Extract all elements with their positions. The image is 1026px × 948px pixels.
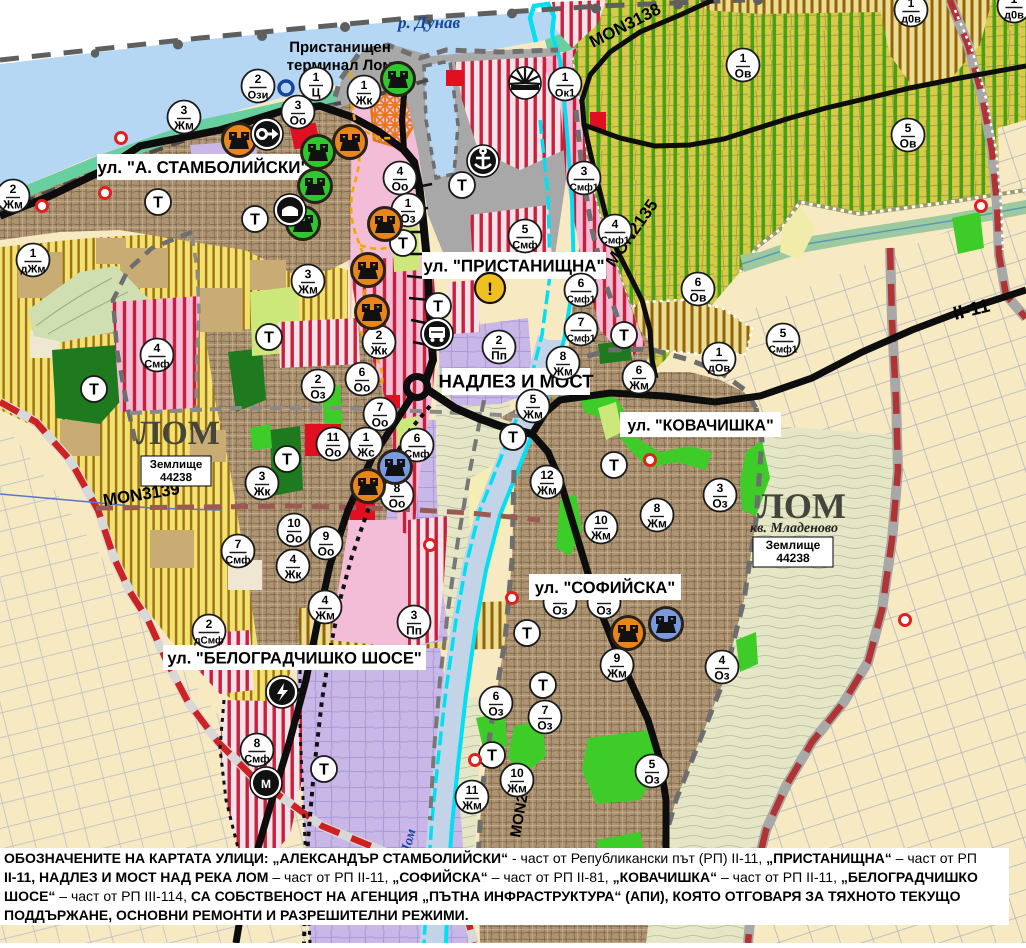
svg-text:1: 1 — [716, 345, 723, 359]
svg-text:9: 9 — [323, 529, 330, 543]
svg-text:3: 3 — [181, 103, 188, 117]
svg-text:Оз: Оз — [596, 604, 611, 618]
svg-text:7: 7 — [578, 315, 585, 329]
svg-text:Пп: Пп — [491, 349, 507, 363]
svg-text:Жм: Жм — [646, 517, 667, 531]
svg-text:Ок1: Ок1 — [555, 88, 575, 100]
svg-text:Смф: Смф — [512, 240, 538, 252]
svg-text:Жм: Жм — [506, 782, 527, 796]
svg-text:Ов: Ов — [900, 137, 917, 151]
svg-text:М: М — [261, 777, 271, 791]
svg-text:Смф: Смф — [225, 555, 251, 567]
svg-text:Жм: Жм — [590, 529, 611, 543]
svg-text:Оо: Оо — [290, 114, 307, 128]
svg-text:5: 5 — [530, 392, 537, 406]
svg-text:2: 2 — [496, 333, 503, 347]
svg-text:Т: Т — [89, 382, 99, 399]
svg-text:6: 6 — [359, 365, 366, 379]
svg-text:Оо: Оо — [354, 381, 371, 395]
svg-text:Пп: Пп — [406, 624, 422, 638]
svg-text:1: 1 — [908, 0, 915, 10]
svg-text:Оо: Оо — [372, 416, 389, 430]
svg-text:Т: Т — [487, 748, 497, 765]
svg-text:Оз: Оз — [552, 604, 567, 618]
svg-text:!: ! — [487, 279, 493, 299]
svg-text:ул. "БЕЛОГРАДЧИШКО ШОСЕ": ул. "БЕЛОГРАДЧИШКО ШОСЕ" — [167, 650, 421, 668]
svg-text:Ов: Ов — [690, 291, 707, 305]
svg-text:Жм: Жм — [628, 379, 649, 393]
svg-text:Жм: Жм — [536, 484, 557, 498]
svg-text:Т: Т — [619, 328, 629, 345]
svg-text:3: 3 — [295, 98, 302, 112]
svg-text:Смф: Смф — [144, 359, 170, 371]
svg-text:2: 2 — [376, 328, 383, 342]
svg-text:Жм: Жм — [552, 365, 573, 379]
svg-text:Т: Т — [538, 678, 548, 695]
svg-text:5: 5 — [522, 222, 529, 236]
svg-text:дОв: дОв — [708, 363, 731, 375]
svg-text:ЛОМ: ЛОМ — [757, 486, 846, 526]
svg-text:д0в: д0в — [901, 14, 921, 26]
svg-text:5: 5 — [780, 326, 787, 340]
svg-text:10: 10 — [510, 766, 524, 780]
svg-text:6: 6 — [636, 363, 643, 377]
svg-text:Оз: Оз — [310, 388, 325, 402]
svg-text:8: 8 — [654, 501, 661, 515]
svg-text:5: 5 — [905, 121, 912, 135]
svg-text:2: 2 — [255, 72, 262, 86]
svg-text:ул. "А. СТАМБОЛИЙСКИ": ул. "А. СТАМБОЛИЙСКИ" — [97, 157, 308, 177]
svg-text:кв. Младеново: кв. Младеново — [750, 521, 838, 536]
svg-text:4: 4 — [154, 341, 161, 355]
svg-text:Жк: Жк — [355, 94, 374, 108]
svg-text:Жк: Жк — [284, 568, 303, 582]
svg-text:11: 11 — [327, 430, 340, 444]
svg-text:1: 1 — [562, 70, 569, 84]
svg-text:Оз: Оз — [537, 719, 552, 733]
svg-text:Смф1: Смф1 — [567, 295, 596, 306]
svg-text:2: 2 — [206, 617, 213, 631]
svg-text:11: 11 — [466, 783, 479, 797]
svg-text:3: 3 — [411, 608, 418, 622]
svg-text:Жм: Жм — [606, 667, 627, 681]
svg-text:ул. "КОВАЧИШКА": ул. "КОВАЧИШКА" — [627, 418, 773, 435]
svg-text:Т: Т — [522, 626, 532, 643]
svg-text:Землище: Землище — [766, 538, 821, 552]
svg-text:Оо: Оо — [325, 446, 342, 460]
svg-text:1: 1 — [30, 246, 37, 260]
svg-text:4: 4 — [719, 653, 726, 667]
svg-text:Оз: Оз — [488, 705, 503, 719]
svg-text:10: 10 — [594, 513, 608, 527]
svg-text:Жм: Жм — [173, 119, 194, 133]
svg-text:9: 9 — [614, 651, 621, 665]
svg-text:8: 8 — [560, 349, 567, 363]
svg-text:Смф: Смф — [244, 754, 270, 766]
svg-text:Оз: Оз — [714, 669, 729, 683]
svg-text:1: 1 — [405, 196, 412, 210]
svg-text:Смф1: Смф1 — [601, 236, 630, 247]
svg-text:Пристанищен: Пристанищен — [289, 39, 391, 56]
svg-text:Жк: Жк — [253, 485, 272, 499]
svg-text:Жс: Жс — [356, 446, 375, 460]
svg-text:Оз: Оз — [644, 773, 659, 787]
svg-text:Ов: Ов — [735, 67, 752, 81]
svg-text:Жм: Жм — [314, 609, 335, 623]
svg-text:4: 4 — [397, 164, 404, 178]
svg-text:Ози: Ози — [248, 90, 269, 102]
svg-text:12: 12 — [540, 468, 554, 482]
svg-text:Жм: Жм — [461, 799, 482, 813]
svg-text:3: 3 — [717, 481, 724, 495]
svg-text:Т: Т — [264, 330, 274, 347]
svg-text:44238: 44238 — [776, 551, 810, 565]
svg-text:1: 1 — [313, 70, 320, 84]
svg-text:ЛОМ: ЛОМ — [136, 415, 220, 452]
svg-text:Т: Т — [319, 762, 329, 779]
svg-text:4: 4 — [322, 593, 329, 607]
svg-text:Оо: Оо — [389, 497, 406, 511]
svg-text:ул. "ПРИСТАНИЩНА": ул. "ПРИСТАНИЩНА" — [423, 257, 604, 276]
svg-text:1: 1 — [740, 51, 747, 65]
svg-text:Жм: Жм — [2, 198, 23, 212]
svg-text:2: 2 — [10, 182, 17, 196]
svg-text:4: 4 — [612, 217, 619, 231]
svg-text:Смф1: Смф1 — [567, 334, 596, 345]
svg-text:1: 1 — [361, 78, 368, 92]
svg-text:5: 5 — [649, 757, 656, 771]
svg-text:Оо: Оо — [318, 545, 335, 559]
svg-text:дСмф: дСмф — [194, 636, 224, 647]
svg-text:Оо: Оо — [392, 180, 409, 194]
svg-text:Смф1: Смф1 — [570, 183, 599, 194]
svg-text:Оз: Оз — [712, 497, 727, 511]
svg-text:10: 10 — [287, 516, 301, 530]
svg-text:Т: Т — [398, 236, 408, 253]
svg-text:3: 3 — [305, 267, 312, 281]
svg-text:Т: Т — [609, 458, 619, 475]
svg-text:6: 6 — [578, 276, 585, 290]
svg-text:1: 1 — [363, 430, 370, 444]
svg-text:Ц: Ц — [312, 86, 321, 100]
svg-text:6: 6 — [695, 275, 702, 289]
svg-text:Т: Т — [457, 178, 467, 195]
svg-text:Т: Т — [433, 299, 443, 316]
svg-text:Жм: Жм — [297, 283, 318, 297]
svg-text:р. Дунав: р. Дунав — [396, 13, 461, 32]
svg-text:3: 3 — [581, 164, 588, 178]
svg-text:Жк: Жк — [370, 344, 389, 358]
svg-text:Т: Т — [250, 212, 260, 229]
svg-text:Т: Т — [153, 195, 163, 212]
svg-text:1: 1 — [1011, 0, 1018, 6]
svg-text:2: 2 — [315, 372, 322, 386]
svg-text:Землище: Землище — [150, 459, 202, 471]
svg-text:Т: Т — [508, 430, 518, 447]
svg-text:6: 6 — [493, 689, 500, 703]
svg-text:8: 8 — [254, 736, 261, 750]
svg-text:6: 6 — [414, 431, 421, 445]
svg-text:4: 4 — [290, 552, 297, 566]
svg-text:44238: 44238 — [160, 472, 193, 484]
svg-text:д0в: д0в — [1004, 10, 1024, 22]
svg-text:7: 7 — [377, 400, 384, 414]
svg-text:Смф1: Смф1 — [769, 345, 798, 356]
svg-text:7: 7 — [235, 537, 242, 551]
svg-text:Жм: Жм — [522, 408, 543, 422]
svg-text:7: 7 — [542, 703, 549, 717]
svg-text:дЖм: дЖм — [20, 264, 45, 276]
svg-text:3: 3 — [259, 469, 266, 483]
svg-text:ул. "СОФИЙСКА": ул. "СОФИЙСКА" — [535, 578, 675, 597]
svg-text:Оо: Оо — [286, 532, 303, 546]
svg-text:Т: Т — [282, 452, 292, 469]
svg-text:терминал Лом: терминал Лом — [287, 57, 394, 74]
